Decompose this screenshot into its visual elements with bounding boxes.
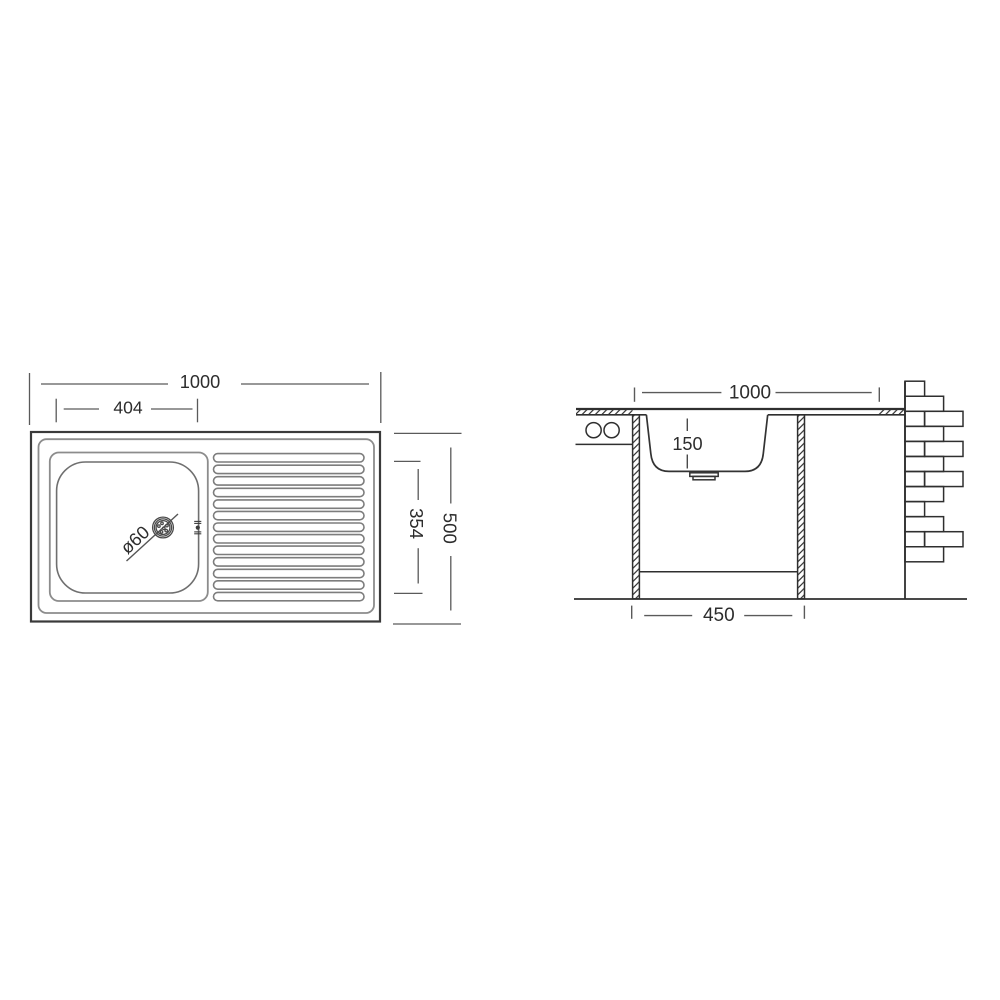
svg-text:354: 354 bbox=[406, 508, 427, 539]
svg-text:404: 404 bbox=[113, 398, 143, 418]
svg-text:1000: 1000 bbox=[729, 382, 771, 403]
svg-text:ø60: ø60 bbox=[117, 522, 154, 558]
svg-text:450: 450 bbox=[703, 605, 735, 626]
svg-text:1000: 1000 bbox=[180, 372, 220, 392]
svg-text:150: 150 bbox=[672, 434, 702, 454]
svg-text:500: 500 bbox=[440, 513, 461, 544]
